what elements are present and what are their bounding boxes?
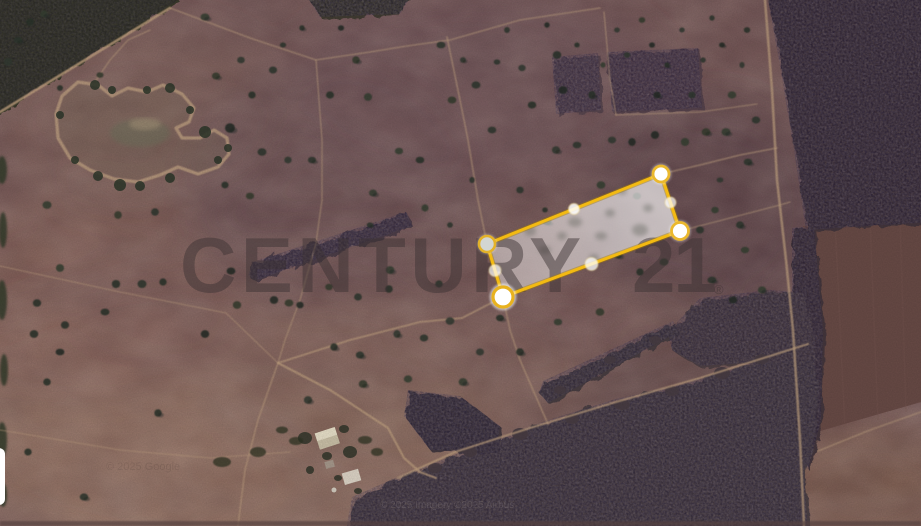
svg-text:®: ®	[714, 282, 724, 297]
svg-text:© 2025 Imagery ©2025 Airbus: © 2025 Imagery ©2025 Airbus	[380, 500, 514, 511]
svg-text:CENTURY: CENTURY	[180, 221, 586, 309]
svg-text:© 2025 Google: © 2025 Google	[106, 461, 180, 473]
